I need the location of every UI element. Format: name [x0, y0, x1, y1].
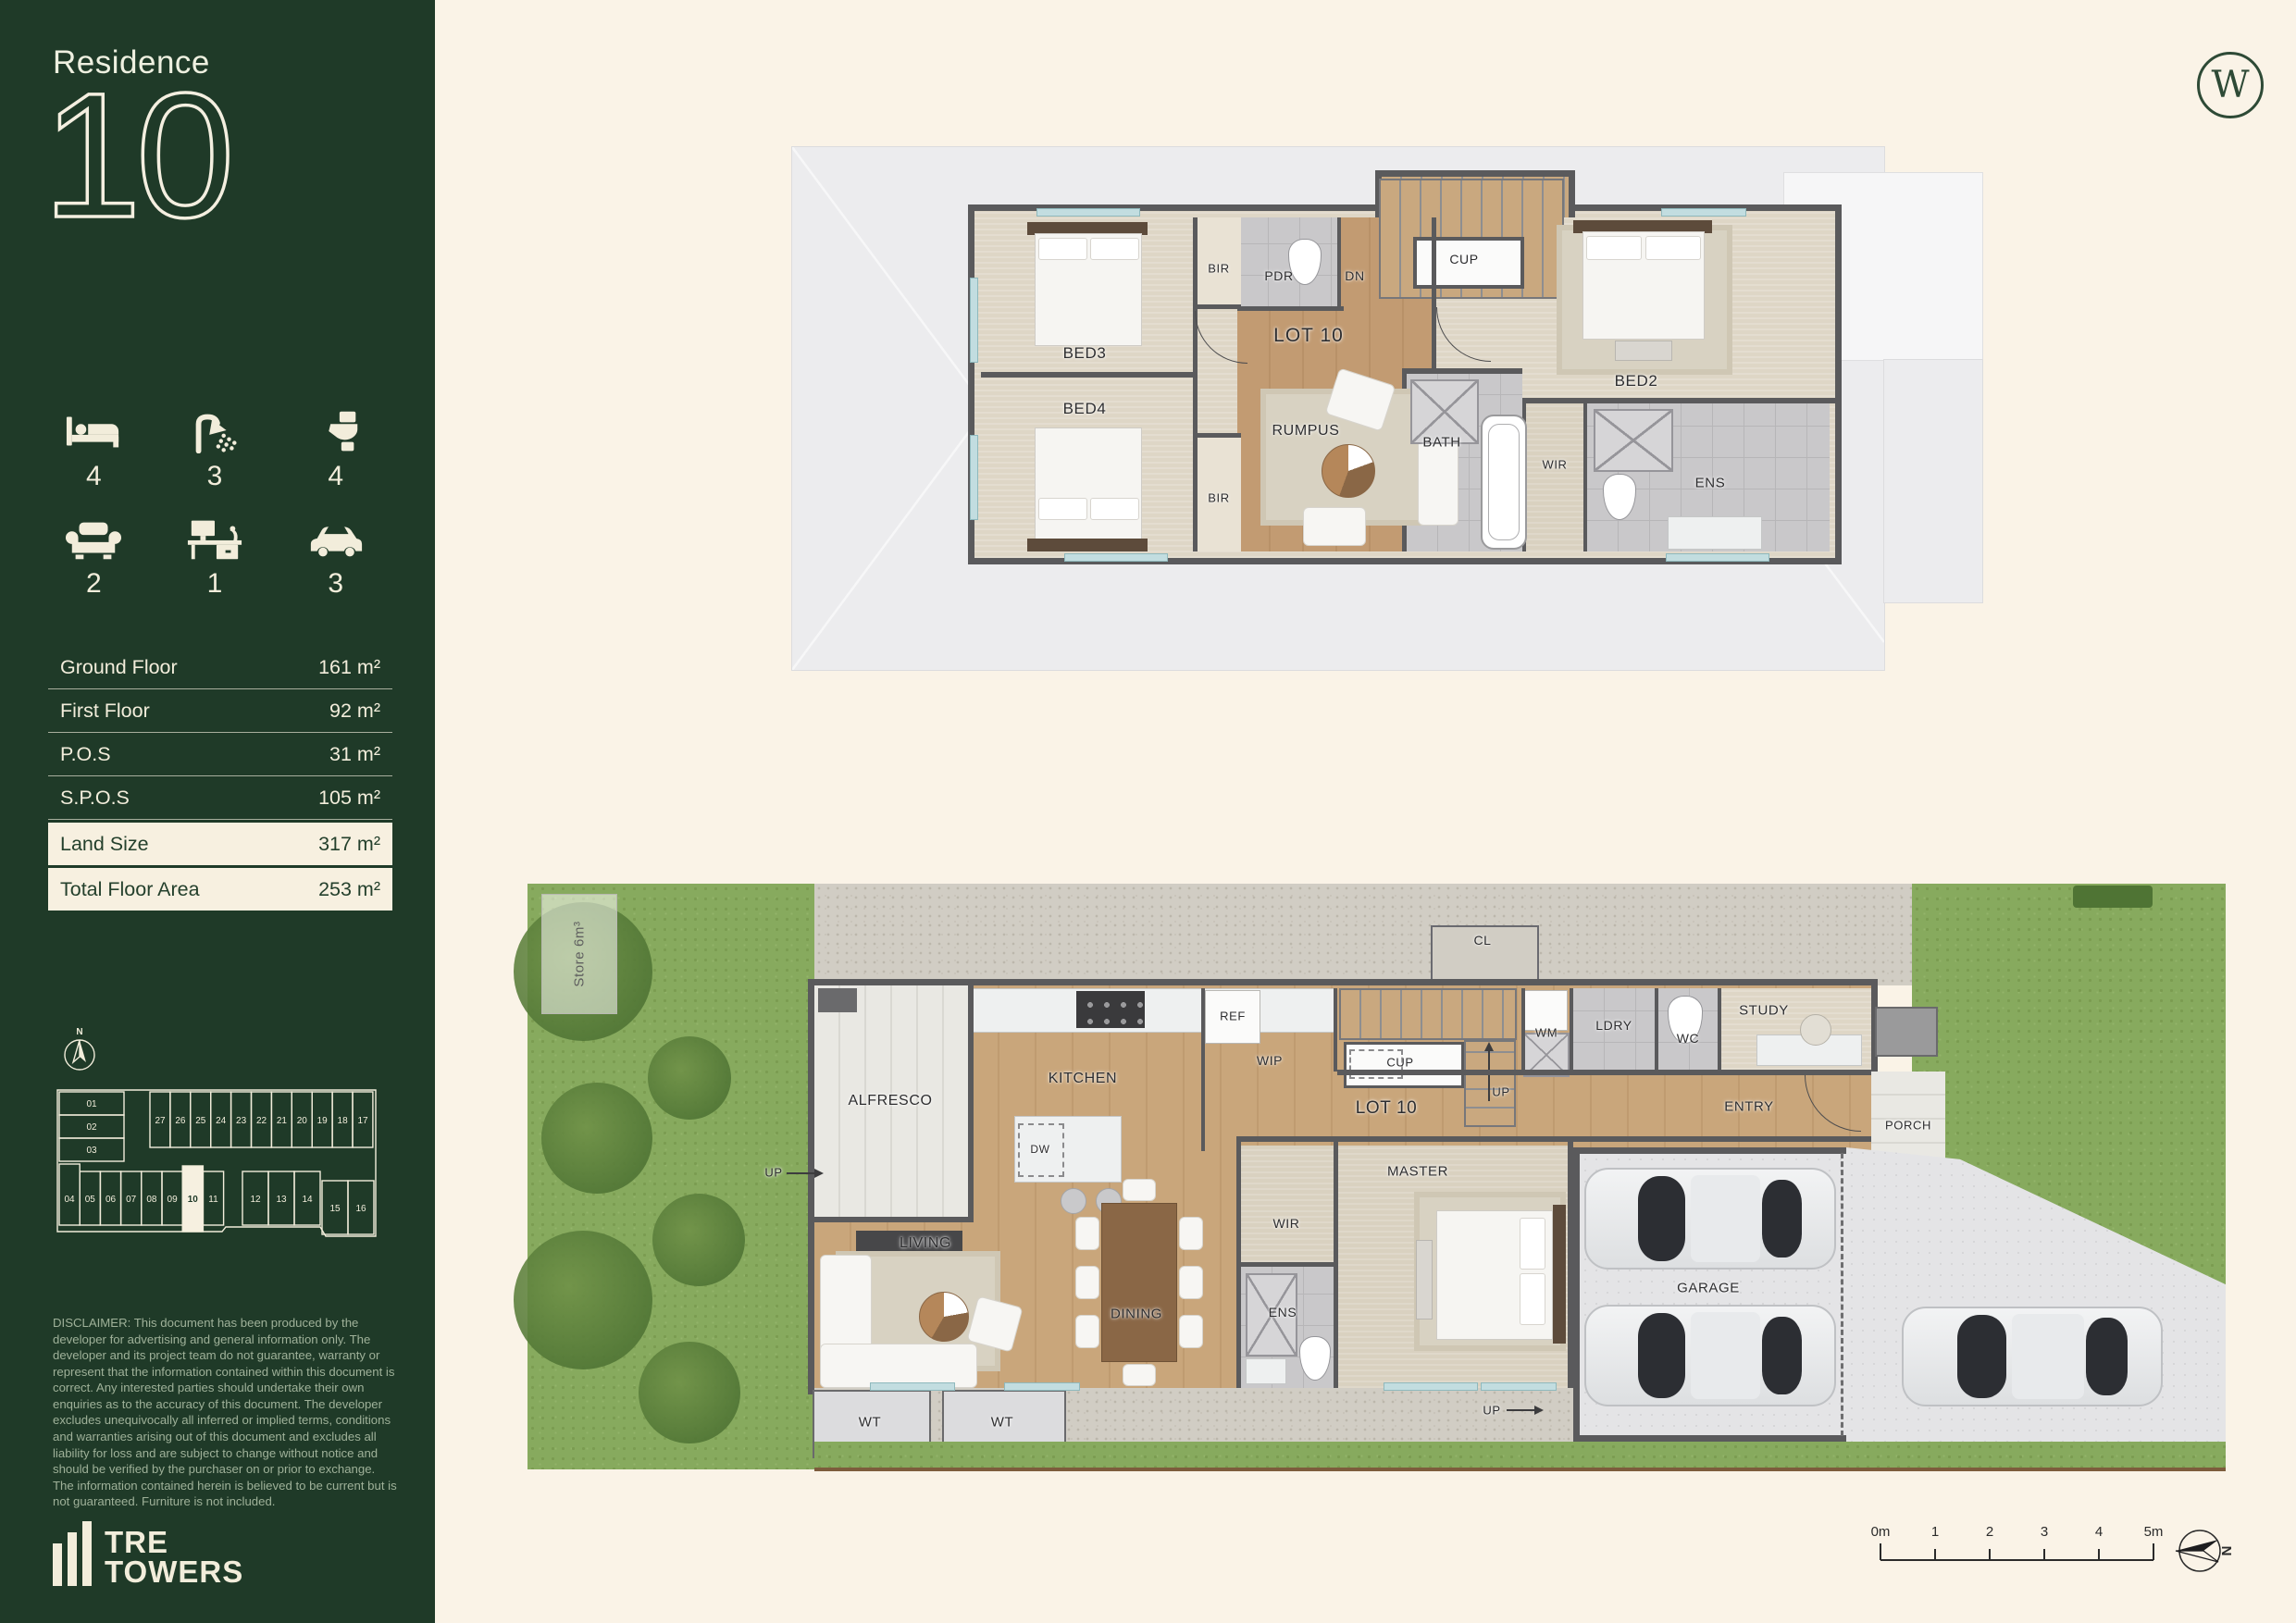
- bed4-headboard: [1027, 539, 1148, 551]
- wall: [814, 1217, 974, 1222]
- wall: [1718, 988, 1721, 1073]
- shrub: [648, 1036, 731, 1120]
- lot-diagram: 01 02 03 27 26 25 24 23 22 21 20 19 18 1…: [57, 1090, 376, 1236]
- room-label-bed2: BED2: [1615, 372, 1658, 390]
- room-label-wir: WIR: [1542, 458, 1567, 472]
- stair-arrow-line: [1488, 1049, 1490, 1101]
- wall: [1570, 988, 1573, 1073]
- label-up-garage: UP: [1483, 1404, 1500, 1418]
- svg-text:17: 17: [357, 1116, 368, 1126]
- stat-study: 1: [155, 516, 276, 600]
- car: [1902, 1307, 2163, 1406]
- roof-wing: [1883, 359, 1983, 603]
- room-label-study: STUDY: [1739, 1003, 1789, 1019]
- wall: [1337, 217, 1341, 310]
- svg-text:21: 21: [277, 1116, 288, 1126]
- chair: [1123, 1364, 1156, 1386]
- tree: [514, 1231, 652, 1369]
- cars-count: 3: [328, 568, 343, 600]
- pillow: [1520, 1273, 1545, 1325]
- wir-floor: [1241, 1146, 1334, 1262]
- label-wt2: WT: [991, 1415, 1014, 1431]
- room-label-wip: WIP: [1257, 1053, 1283, 1068]
- label-dw: DW: [1030, 1143, 1049, 1156]
- sidebar: Residence 10 4 3 4 2 1: [0, 0, 435, 1623]
- svg-text:3: 3: [2041, 1524, 2048, 1540]
- svg-text:24: 24: [216, 1116, 227, 1126]
- wall: [1521, 988, 1525, 1073]
- car-icon: [307, 516, 365, 561]
- room-label-alfresco: ALFRESCO: [848, 1093, 932, 1109]
- armchair-icon: [65, 516, 122, 561]
- svg-text:08: 08: [146, 1195, 157, 1205]
- pillow: [1038, 498, 1087, 520]
- ensuite-vanity: [1668, 516, 1762, 550]
- kitchen-bench: [972, 988, 1336, 1033]
- residence-number: 10: [43, 67, 230, 244]
- room-label-living: LIVING: [900, 1235, 951, 1252]
- stat-bedrooms: 4: [33, 409, 155, 492]
- wall: [1201, 988, 1205, 1151]
- room-label-entry: ENTRY: [1724, 1099, 1774, 1115]
- room-label-lot10-ground: LOT 10: [1356, 1098, 1418, 1119]
- chair: [1179, 1217, 1203, 1250]
- rumpus-ottoman: [1303, 507, 1366, 546]
- svg-text:12: 12: [250, 1195, 261, 1205]
- pillow: [1645, 236, 1701, 260]
- master-headboard: [1553, 1205, 1566, 1344]
- tre-towers-logo: TRE TOWERS: [53, 1519, 243, 1586]
- window: [1666, 553, 1769, 562]
- toilets-count: 4: [328, 461, 343, 492]
- room-label-pdr: PDR: [1264, 268, 1293, 283]
- room-label-ens: ENS: [1695, 476, 1726, 491]
- svg-text:07: 07: [126, 1195, 137, 1205]
- tree: [541, 1083, 652, 1194]
- svg-text:N: N: [2218, 1546, 2234, 1556]
- living-count: 2: [86, 568, 102, 600]
- room-label-bed3: BED3: [1063, 344, 1107, 363]
- ensuite-ground-vanity: [1246, 1358, 1286, 1384]
- svg-text:10: 10: [188, 1195, 199, 1205]
- bed4-bed: [1035, 427, 1142, 542]
- svg-text:4: 4: [2095, 1524, 2103, 1540]
- wall: [1522, 398, 1835, 403]
- area-label: Land Size: [60, 833, 149, 856]
- room-label-bir-bottom: BIR: [1208, 491, 1229, 505]
- toilet-icon: [307, 409, 365, 453]
- pillow: [1520, 1218, 1545, 1270]
- room-label-rumpus: RUMPUS: [1272, 423, 1340, 440]
- area-row-spos: S.P.O.S105 m²: [48, 776, 392, 820]
- car: [1584, 1168, 1836, 1270]
- logo-bar: [82, 1521, 92, 1586]
- monogram-letter: W: [2211, 64, 2249, 106]
- brand-line-2: TOWERS: [105, 1557, 243, 1586]
- car: [1584, 1305, 1836, 1406]
- svg-text:15: 15: [329, 1204, 341, 1214]
- store-label: Store 6m³: [572, 921, 588, 986]
- area-row-land-size: Land Size317 m²: [48, 823, 392, 865]
- svg-text:05: 05: [85, 1195, 96, 1205]
- service-pad: [1875, 1007, 1938, 1057]
- room-label-dn: DN: [1345, 268, 1364, 283]
- area-label: Total Floor Area: [60, 878, 200, 901]
- svg-text:18: 18: [338, 1116, 349, 1126]
- window: [1661, 208, 1746, 217]
- area-value: 161 m²: [318, 656, 380, 679]
- pillow: [1586, 236, 1642, 260]
- wall: [1237, 306, 1344, 311]
- shrub: [652, 1194, 745, 1286]
- window: [1481, 1382, 1557, 1391]
- wall: [968, 985, 974, 1217]
- svg-text:14: 14: [302, 1195, 313, 1205]
- area-label: S.P.O.S: [60, 787, 130, 810]
- up-arrow-line: [787, 1172, 814, 1174]
- window: [1036, 208, 1140, 217]
- coffee-table: [919, 1292, 969, 1342]
- label-ref: REF: [1220, 1010, 1246, 1023]
- wall: [1583, 398, 1587, 551]
- stair-arrow-head: [1484, 1042, 1494, 1051]
- window: [1004, 1382, 1080, 1391]
- svg-text:5m: 5m: [2144, 1524, 2164, 1540]
- area-value: 253 m²: [318, 878, 380, 901]
- svg-text:16: 16: [355, 1204, 366, 1214]
- svg-text:13: 13: [276, 1195, 287, 1205]
- chair: [1179, 1315, 1203, 1348]
- room-label-bath: BATH: [1422, 435, 1460, 451]
- wall: [1334, 988, 1337, 1072]
- label-wm: WM: [1535, 1026, 1558, 1040]
- wall: [1337, 1070, 1871, 1075]
- svg-text:2: 2: [1986, 1524, 1993, 1540]
- label-up-stairs: UP: [1492, 1085, 1509, 1099]
- room-label-kitchen: KITCHEN: [1049, 1071, 1117, 1087]
- stat-living: 2: [33, 516, 155, 600]
- window: [1384, 1382, 1478, 1391]
- up-arrow-head: [1534, 1406, 1544, 1415]
- wall: [1655, 988, 1658, 1073]
- svg-text:06: 06: [105, 1195, 117, 1205]
- svg-text:1: 1: [1931, 1524, 1939, 1540]
- window: [1064, 553, 1168, 562]
- wall: [1402, 368, 1522, 374]
- walk-in-robe-floor: [1526, 403, 1583, 551]
- svg-text:26: 26: [175, 1116, 186, 1126]
- disclaimer-text: DISCLAIMER: This document has been produ…: [53, 1315, 397, 1510]
- label-up-alfresco: UP: [764, 1166, 782, 1180]
- laundry-sink: [1523, 990, 1568, 1031]
- room-label-porch: PORCH: [1885, 1119, 1931, 1133]
- wall: [1193, 433, 1241, 438]
- brochure-page: Residence 10 4 3 4 2 1: [0, 0, 2296, 1623]
- area-value: 92 m²: [329, 700, 380, 723]
- logo-bar: [68, 1532, 77, 1586]
- grass-strip-bottom: [814, 1442, 2226, 1469]
- powder-room-floor: [1237, 217, 1337, 306]
- pillow: [1038, 238, 1087, 260]
- north-compass-icon: N: [65, 1027, 94, 1070]
- up-arrow-head: [814, 1169, 824, 1178]
- store-box: Store 6m³: [541, 894, 617, 1014]
- cooktop: [1076, 991, 1145, 1028]
- chair: [1123, 1179, 1156, 1201]
- wall: [1193, 217, 1198, 551]
- svg-text:22: 22: [256, 1116, 267, 1126]
- brand-line-1: TRE: [105, 1528, 243, 1556]
- bathtub: [1481, 415, 1527, 550]
- logo-bar: [53, 1543, 62, 1586]
- bathrooms-count: 3: [207, 461, 223, 492]
- room-label-cup: CUP: [1449, 252, 1478, 266]
- garage-door-line: [1841, 1153, 1843, 1436]
- window: [970, 278, 978, 363]
- developer-monogram: W: [2197, 52, 2264, 118]
- svg-text:03: 03: [86, 1146, 97, 1156]
- hedge: [2073, 886, 2153, 908]
- chair: [1179, 1266, 1203, 1299]
- pillow: [1090, 498, 1139, 520]
- area-row-total-floor-area: Total Floor Area253 m²: [48, 868, 392, 911]
- svg-text:09: 09: [168, 1195, 179, 1205]
- chair: [1075, 1217, 1099, 1250]
- master-bench: [1416, 1240, 1433, 1319]
- svg-text:0m: 0m: [1871, 1524, 1891, 1540]
- bedrooms-count: 4: [86, 461, 102, 492]
- chair: [1075, 1315, 1099, 1348]
- chair: [1075, 1266, 1099, 1299]
- room-label-dining: DINING: [1111, 1307, 1162, 1322]
- room-label-lot10: LOT 10: [1273, 325, 1344, 347]
- stats-grid: 4 3 4 2 1 3: [33, 409, 396, 600]
- rumpus-table: [1322, 444, 1375, 498]
- shower-icon: [186, 409, 243, 453]
- svg-text:20: 20: [297, 1116, 308, 1126]
- area-table: Ground Floor161 m² First Floor92 m² P.O.…: [48, 646, 392, 911]
- study-count: 1: [207, 568, 223, 600]
- room-label-garage: GARAGE: [1677, 1281, 1740, 1296]
- logo-bars-icon: [53, 1519, 97, 1586]
- room-label-ens-ground: ENS: [1269, 1305, 1297, 1319]
- bed2-bench: [1615, 341, 1672, 361]
- svg-text:11: 11: [208, 1195, 218, 1205]
- window: [970, 435, 978, 520]
- room-label-bir-top: BIR: [1208, 262, 1229, 276]
- label-cl: CL: [1473, 933, 1491, 948]
- svg-text:04: 04: [64, 1195, 75, 1205]
- room-label-ldry: LDRY: [1595, 1018, 1632, 1033]
- label-cup-ground: CUP: [1386, 1056, 1413, 1070]
- stat-bathrooms: 3: [155, 409, 276, 492]
- room-label-master: MASTER: [1387, 1164, 1448, 1180]
- room-label-wc: WC: [1677, 1031, 1700, 1046]
- svg-text:25: 25: [195, 1116, 206, 1126]
- stool: [1061, 1188, 1086, 1214]
- wall: [1236, 1136, 1871, 1142]
- area-label: Ground Floor: [60, 656, 178, 679]
- area-label: P.O.S: [60, 743, 111, 766]
- window: [870, 1382, 955, 1391]
- wall: [1193, 304, 1241, 309]
- area-value: 317 m²: [318, 833, 380, 856]
- area-row-first-floor: First Floor92 m²: [48, 689, 392, 733]
- stairs-lower-flight: [1464, 1040, 1516, 1127]
- sofa: [820, 1344, 977, 1388]
- bed-icon: [65, 409, 122, 453]
- area-row-pos: P.O.S31 m²: [48, 733, 392, 776]
- wall: [981, 372, 1195, 378]
- north-compass-plan-icon: N: [2176, 1530, 2234, 1571]
- label-wt1: WT: [859, 1415, 882, 1431]
- site-map: N 01 02 03 27 26 25 24: [43, 1020, 392, 1253]
- svg-text:01: 01: [86, 1099, 97, 1109]
- area-value: 105 m²: [318, 787, 380, 810]
- area-label: First Floor: [60, 700, 150, 723]
- stat-toilets: 4: [275, 409, 396, 492]
- pillow: [1090, 238, 1139, 260]
- dining-table: [1101, 1203, 1177, 1362]
- gravel-path-top: [814, 884, 1912, 985]
- wall: [1432, 217, 1436, 368]
- room-label-wir-ground: WIR: [1272, 1216, 1299, 1231]
- svg-text:N: N: [76, 1027, 82, 1037]
- room-label-bed4: BED4: [1063, 400, 1107, 418]
- up-arrow-line: [1507, 1409, 1534, 1411]
- study-chair: [1800, 1014, 1831, 1046]
- svg-text:27: 27: [155, 1116, 166, 1126]
- stat-cars: 3: [275, 516, 396, 600]
- scale-bar: 0m 1 2 3 4 5m N: [1860, 1519, 2258, 1584]
- shrub: [639, 1342, 740, 1443]
- timber-edge: [814, 1468, 2226, 1471]
- area-row-ground-floor: Ground Floor161 m²: [48, 646, 392, 689]
- stairs-upper-flight: [1339, 988, 1517, 1040]
- area-value: 31 m²: [329, 743, 380, 766]
- svg-text:23: 23: [236, 1116, 247, 1126]
- svg-text:02: 02: [86, 1122, 97, 1133]
- desk-icon: [186, 516, 243, 561]
- svg-text:19: 19: [317, 1116, 329, 1126]
- ensuite-shower: [1594, 409, 1673, 472]
